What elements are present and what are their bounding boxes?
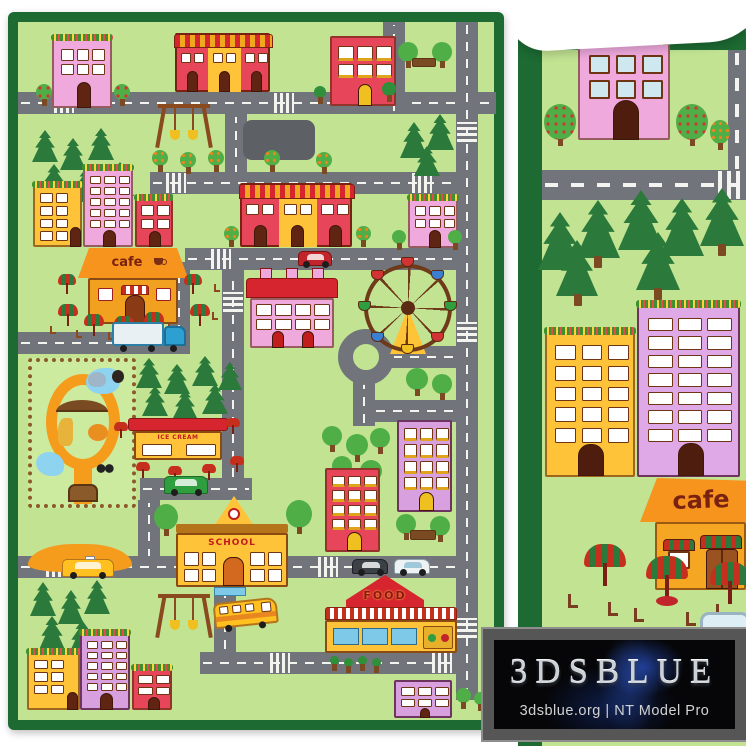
window (101, 662, 112, 670)
door (420, 708, 430, 718)
bush-icon (314, 86, 326, 98)
window (555, 366, 576, 381)
window (338, 64, 354, 79)
mansion (246, 274, 338, 348)
window (295, 304, 311, 316)
window (555, 345, 576, 360)
window (364, 490, 377, 501)
roof-flowers (32, 181, 83, 188)
window (404, 444, 417, 457)
window (101, 652, 112, 660)
tree-icon (224, 226, 239, 241)
table-icon (656, 596, 678, 606)
gondola-icon (444, 301, 457, 311)
window (51, 660, 65, 669)
window (404, 428, 417, 441)
window (648, 410, 673, 423)
window-grid (338, 46, 392, 78)
swing-seat (188, 130, 198, 140)
crosswalk (457, 122, 477, 142)
pine-tree-icon (172, 390, 198, 420)
swing-seat (188, 620, 198, 630)
window (707, 336, 732, 349)
ice-cream-kiosk: ICE CREAM (134, 431, 222, 460)
window (184, 552, 199, 566)
window (332, 476, 345, 487)
apartment-building-red (135, 198, 173, 247)
window (678, 336, 703, 349)
window (582, 366, 603, 381)
umbrella-icon (136, 462, 150, 478)
tree-icon (154, 504, 178, 530)
window (186, 444, 216, 456)
window (268, 552, 283, 566)
window (92, 49, 105, 61)
window (648, 318, 673, 331)
window (415, 219, 426, 229)
window-grid (321, 204, 349, 215)
school-bus (213, 597, 280, 636)
crosswalk (412, 173, 432, 193)
tree-icon (448, 230, 462, 244)
window (119, 220, 130, 228)
wheel-icon (148, 345, 155, 352)
giraffe-icon (58, 418, 73, 446)
window (678, 410, 703, 423)
chair-icon (568, 594, 578, 608)
window (357, 64, 373, 79)
window-grid (87, 641, 127, 691)
window-grid (246, 204, 274, 215)
tree-trunk (574, 294, 582, 306)
road (373, 400, 456, 422)
door (613, 100, 639, 140)
window (119, 187, 130, 195)
apartment-building-lilac (394, 680, 452, 718)
window (300, 204, 313, 215)
tiled-roof (239, 184, 355, 199)
window (77, 64, 90, 76)
window-grid (213, 53, 236, 63)
window (56, 206, 69, 216)
window (181, 53, 191, 63)
window-grid (648, 318, 732, 442)
wheel-icon (377, 569, 384, 576)
gondola-icon (431, 332, 444, 342)
roof-flowers (407, 194, 459, 201)
chair-icon (686, 612, 696, 626)
window (157, 205, 170, 216)
window (678, 429, 703, 442)
sign-light-red (441, 634, 449, 642)
door (251, 71, 262, 92)
window (608, 387, 629, 402)
tree-icon (432, 374, 452, 394)
window (616, 80, 637, 99)
taxi (62, 559, 114, 577)
window (435, 699, 449, 708)
watermark-brand: 3DSBLUE (494, 652, 735, 692)
window (707, 373, 732, 386)
umbrella-icon (190, 304, 210, 326)
window (61, 49, 74, 61)
door (302, 331, 314, 348)
crosswalk (457, 322, 477, 342)
page: { "watermark": { "brand": "3DSBLUE", "ta… (0, 0, 746, 746)
umbrella-icon (84, 314, 104, 336)
ice-cream-kiosk-roof (128, 418, 228, 431)
pine-tree-icon (136, 358, 162, 388)
window (142, 444, 172, 456)
apartment-building-red (132, 668, 172, 710)
window (275, 304, 291, 316)
window (444, 206, 455, 216)
car-cabin (175, 479, 197, 486)
school-building: SCHOOL (176, 533, 288, 587)
window (555, 387, 576, 402)
window (401, 687, 415, 696)
window (119, 198, 130, 206)
watermark-tagline: 3dsblue.org | NT Model Pro (494, 703, 735, 719)
tree-icon (208, 150, 224, 166)
mansion-facade (250, 298, 334, 348)
school-sign: SCHOOL (178, 539, 286, 548)
pine-tree-icon (142, 386, 168, 416)
window (648, 392, 673, 405)
swing-set (158, 104, 210, 148)
window-grid (40, 193, 68, 241)
window (40, 206, 53, 216)
window (582, 345, 603, 360)
rug-field: cafe (18, 22, 494, 720)
window (90, 176, 101, 184)
apartment-building-pink (52, 38, 112, 108)
window-grid (138, 675, 170, 695)
pond (36, 452, 64, 476)
window (608, 366, 629, 381)
window (582, 428, 603, 443)
door (429, 230, 441, 248)
window (707, 392, 732, 405)
window (642, 80, 663, 99)
penguins-icon (96, 462, 114, 475)
door (254, 225, 267, 247)
window (648, 429, 673, 442)
chair-icon (212, 312, 218, 320)
window (98, 288, 113, 301)
door (272, 331, 284, 348)
apartment-building-yellow (27, 652, 80, 710)
window (141, 219, 154, 230)
cafe-roof: cafe (78, 248, 188, 278)
window-grid (332, 476, 377, 530)
window (418, 699, 432, 708)
window (104, 176, 115, 184)
window-grid (589, 55, 663, 99)
apartment-building-red (325, 468, 380, 552)
truck (112, 318, 188, 354)
wheel-icon (99, 572, 106, 579)
window (219, 606, 229, 615)
row-houses (240, 183, 352, 247)
window (258, 53, 268, 63)
window (404, 461, 417, 474)
window (295, 319, 311, 331)
window (420, 461, 433, 474)
window (678, 373, 703, 386)
window (116, 683, 127, 691)
car-cabin (307, 254, 324, 260)
tree-icon (152, 150, 168, 166)
window (314, 304, 330, 316)
tree-icon (264, 150, 280, 166)
window (138, 687, 153, 696)
door (419, 492, 434, 511)
window (250, 552, 265, 566)
car-cabin (404, 562, 422, 568)
school-clock (228, 508, 240, 520)
window (678, 318, 703, 331)
mansion-roof (246, 278, 338, 298)
window (56, 219, 69, 229)
window (116, 673, 127, 681)
window (40, 219, 53, 229)
roof-flowers (636, 300, 741, 308)
ice-cream-sign: ICE CREAM (136, 435, 220, 441)
tree-icon (286, 500, 312, 528)
door (148, 697, 160, 710)
window-grid (401, 687, 449, 707)
cafe-roof: cafe (640, 478, 746, 522)
window (707, 318, 732, 331)
pine-tree-icon (88, 128, 114, 160)
tree-icon (370, 428, 390, 448)
window (284, 204, 297, 215)
window (362, 628, 388, 645)
pine-tree-icon (84, 580, 110, 614)
tree-icon (676, 104, 708, 140)
ferris-hub (401, 301, 415, 315)
watermark-plate: 3DSBLUE 3dsblue.org | NT Model Pro (483, 629, 746, 740)
school-door (223, 557, 244, 586)
window (420, 428, 433, 441)
window (332, 519, 345, 530)
window (87, 652, 98, 660)
wheel-icon (303, 261, 310, 268)
food-sign: FOOD (346, 590, 424, 601)
window (420, 444, 433, 457)
window (642, 55, 663, 74)
window (116, 652, 127, 660)
umbrella-icon (226, 418, 240, 434)
pine-tree-icon (192, 356, 218, 386)
window (589, 80, 610, 99)
window-grid (404, 428, 449, 490)
road (456, 22, 478, 700)
window (348, 476, 361, 487)
car (352, 559, 388, 574)
window (245, 53, 255, 63)
food-awning (325, 607, 457, 620)
door-awning (121, 285, 149, 295)
window (275, 319, 291, 331)
tree-icon (356, 226, 371, 241)
window (420, 477, 433, 490)
window (104, 198, 115, 206)
window (56, 193, 69, 203)
car-cabin (362, 562, 380, 568)
pine-tree-icon (30, 582, 56, 616)
bush-icon (344, 658, 353, 667)
swing-set (158, 594, 210, 638)
window (138, 675, 153, 684)
sign-light-green (428, 634, 436, 642)
window (401, 699, 415, 708)
window (314, 319, 330, 331)
umbrella-icon (646, 556, 688, 598)
window (678, 392, 703, 405)
chair-icon (76, 330, 82, 338)
wheel-icon (259, 621, 267, 629)
school-roof (176, 524, 288, 533)
tree-trunk (654, 288, 662, 300)
window-grid (90, 176, 130, 228)
window (213, 53, 223, 63)
zoo-gate (68, 484, 98, 502)
window (648, 336, 673, 349)
window (101, 641, 112, 649)
window (332, 505, 345, 516)
swing-rope (192, 598, 194, 622)
tree-icon (346, 434, 368, 456)
crosswalk (270, 653, 290, 673)
apartment-building-lilac (397, 420, 452, 512)
gondola-icon (431, 270, 444, 280)
school-steps (214, 587, 246, 596)
window-awning (663, 539, 695, 551)
window (116, 662, 127, 670)
tree-icon (392, 230, 406, 244)
door (77, 82, 91, 108)
roof-flowers (79, 629, 131, 636)
door (329, 225, 342, 247)
umbrella-icon (58, 304, 78, 326)
window (40, 193, 53, 203)
window (87, 673, 98, 681)
window (261, 601, 272, 612)
tree-icon (710, 120, 730, 144)
window (90, 187, 101, 195)
window (391, 628, 417, 645)
window-grid (34, 660, 64, 694)
window (156, 687, 171, 696)
tree-icon (316, 152, 332, 168)
window (51, 685, 65, 694)
menu-sign (423, 626, 453, 649)
window (348, 519, 361, 530)
bear-icon (112, 370, 124, 383)
bench-icon (410, 530, 436, 540)
car (394, 559, 430, 574)
window (436, 428, 449, 441)
window (707, 410, 732, 423)
truck-cab (164, 326, 186, 346)
window (202, 569, 217, 583)
window (90, 198, 101, 206)
tree-icon (114, 84, 130, 100)
door (219, 71, 230, 92)
apartment-building-lilac (637, 305, 740, 477)
window (608, 345, 629, 360)
crosswalk (166, 173, 186, 193)
tree-icon (36, 84, 52, 100)
car (298, 251, 332, 266)
window (555, 407, 576, 422)
window (116, 641, 127, 649)
window (707, 429, 732, 442)
window (77, 49, 90, 61)
road (728, 50, 746, 172)
food-roof: FOOD (346, 575, 424, 607)
wheel-icon (120, 345, 127, 352)
window (332, 490, 345, 501)
apartment-building-pink (83, 168, 133, 247)
window (119, 209, 130, 217)
swing-rope (174, 108, 176, 132)
truck-box (112, 322, 164, 346)
wheel-icon (225, 625, 233, 633)
window (104, 209, 115, 217)
door (347, 532, 362, 551)
window (435, 687, 449, 696)
bush-icon (372, 658, 381, 667)
pine-tree-icon (58, 590, 84, 624)
roof-flowers (134, 194, 174, 201)
swing-seat (170, 620, 180, 630)
wheel-icon (170, 345, 177, 352)
door-awning (700, 535, 742, 549)
umbrella-icon (58, 274, 76, 294)
window (404, 477, 417, 490)
window (101, 683, 112, 691)
wheel-icon (195, 489, 202, 496)
door (187, 71, 198, 92)
window (415, 206, 426, 216)
window (436, 477, 449, 490)
window (34, 685, 48, 694)
window (608, 407, 629, 422)
window (101, 673, 112, 681)
cafe-sign: cafe (670, 487, 733, 513)
pine-tree-icon (426, 114, 454, 150)
crosswalk (432, 653, 452, 673)
window (268, 569, 283, 583)
window-grid (61, 49, 105, 75)
crosswalk (223, 292, 243, 312)
window (104, 220, 115, 228)
bench-icon (412, 58, 436, 67)
apartment-building-yellow (33, 185, 82, 247)
bush-icon (358, 656, 367, 665)
window (87, 662, 98, 670)
window (364, 519, 377, 530)
wheel-icon (322, 261, 329, 268)
tree-trunk (594, 256, 602, 268)
roof-flowers (544, 327, 636, 335)
window (582, 407, 603, 422)
window (184, 569, 199, 583)
pine-tree-icon (32, 130, 58, 162)
